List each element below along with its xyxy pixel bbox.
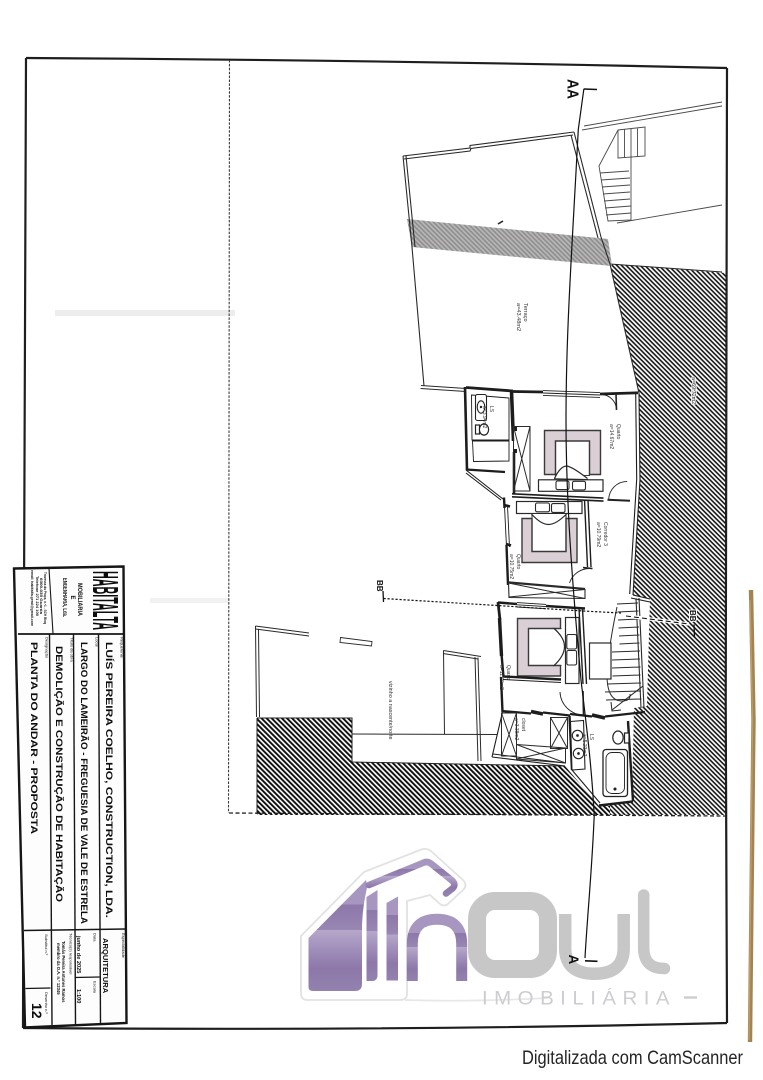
svg-text:1:100: 1:100 — [75, 989, 81, 1003]
svg-text:LARGO DO LAMEIRÃO - FREGUESIA: LARGO DO LAMEIRÃO - FREGUESIA DE VALE DE… — [79, 642, 89, 925]
svg-text:HABITALTA: HABITALTA — [85, 571, 126, 630]
svg-text:Designação: Designação — [45, 637, 50, 659]
svg-text:Quarto: Quarto — [615, 424, 621, 440]
svg-text:MOBILIÁRIA: MOBILIÁRIA — [76, 583, 83, 617]
svg-text:LS: LS — [588, 734, 594, 741]
svg-text:Telefone 271 224 100: Telefone 271 224 100 — [35, 576, 39, 616]
svg-text:vizinho a nascente/norte: vizinho a nascente/norte — [387, 681, 393, 739]
svg-text:ARQUITETURA: ARQUITETURA — [101, 938, 110, 994]
svg-text:Quarto: Quarto — [505, 665, 511, 681]
svg-text:Técnico(s) responsável: Técnico(s) responsável — [69, 933, 74, 974]
svg-text:a=3.94m2: a=3.94m2 — [481, 406, 487, 429]
svg-text:a=10.75m2: a=10.75m2 — [508, 554, 514, 579]
svg-text:junho de 2025: junho de 2025 — [75, 935, 81, 973]
svg-text:Terraço: Terraço — [522, 303, 528, 322]
svg-text:a=69.72m2: a=69.72m2 — [690, 377, 696, 404]
svg-text:a=5.23m2: a=5.23m2 — [581, 734, 587, 757]
svg-text:Corredor 3: Corredor 3 — [602, 522, 608, 546]
svg-text:Requerente: Requerente — [120, 637, 125, 659]
svg-text:ENGENHARIA, Lda.: ENGENHARIA, Lda. — [61, 578, 67, 617]
svg-text:Substitui n.º: Substitui n.º — [44, 934, 49, 956]
svg-text:LUÍS PEREIRA COELHO, CONSTRUCT: LUÍS PEREIRA COELHO, CONSTRUCTION, LDA. — [103, 642, 115, 918]
svg-text:A: A — [566, 955, 581, 965]
svg-text:Título da obra: Título da obra — [70, 637, 75, 662]
svg-text:Quarto: Quarto — [515, 554, 521, 570]
svg-text:Local: Local — [95, 637, 100, 647]
svg-text:Especialidade: Especialidade — [121, 933, 126, 959]
svg-text:Escala: Escala — [93, 981, 98, 994]
svg-text:closet: closet — [520, 718, 526, 732]
svg-text:IMOBILIÁRIA: IMOBILIÁRIA — [482, 989, 676, 1010]
svg-text:LS: LS — [488, 406, 494, 413]
svg-text:BB: BB — [375, 580, 384, 592]
svg-text:Digitalizada com CamScanner: Digitalizada com CamScanner — [522, 1047, 743, 1069]
svg-text:a=3.38m2: a=3.38m2 — [513, 718, 519, 741]
svg-text:PLANTA DO ANDAR - PROPOSTA: PLANTA DO ANDAR - PROPOSTA — [28, 642, 39, 834]
svg-text:DEMOLIÇÃO E CONSTRUÇÃO DE HABI: DEMOLIÇÃO E CONSTRUÇÃO DE HABITAÇÃO — [53, 646, 64, 903]
svg-text:a=14.67m2: a=14.67m2 — [608, 424, 614, 449]
svg-text:AA: AA — [564, 79, 581, 99]
svg-text:email: habitalta.geral@gmail.c: email: habitalta.geral@gmail.com — [30, 570, 34, 626]
svg-text:BB: BB — [688, 610, 697, 622]
svg-text:a=10.79m2: a=10.79m2 — [595, 522, 601, 547]
svg-text:E: E — [69, 596, 75, 600]
svg-text:membro da O.A. n.º 12345: membro da O.A. n.º 12345 — [56, 943, 61, 995]
svg-text:a=43.48m2: a=43.48m2 — [515, 303, 521, 331]
svg-text:12: 12 — [29, 1003, 45, 1019]
svg-text:Data: Data — [93, 933, 98, 942]
